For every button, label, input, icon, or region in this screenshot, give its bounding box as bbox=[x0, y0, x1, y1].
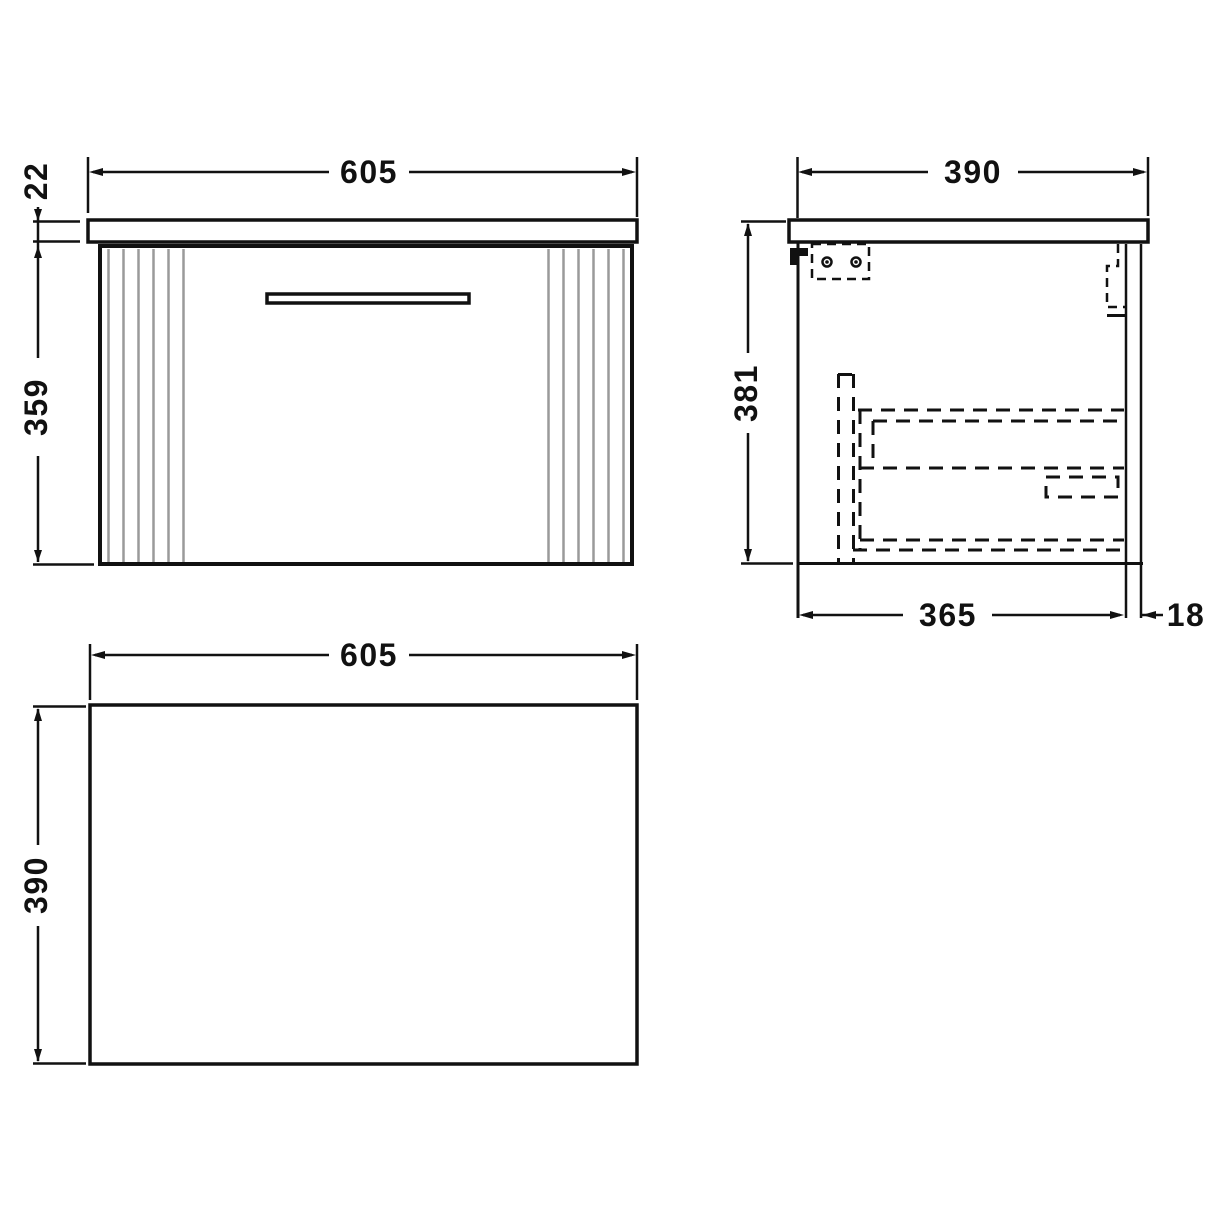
side-mounting-strip bbox=[838, 374, 854, 562]
plan-view: 605 390 bbox=[18, 637, 637, 1064]
side-drawer-hidden-outline bbox=[853, 410, 1124, 550]
drawing-canvas: 605 22 359 bbox=[0, 0, 1224, 1224]
front-counter-label: 22 bbox=[18, 162, 54, 201]
plan-depth-label: 390 bbox=[18, 856, 54, 914]
plan-outline bbox=[90, 705, 637, 1064]
side-front-panel bbox=[1126, 244, 1141, 618]
plan-dim-width: 605 bbox=[90, 637, 637, 700]
side-view: 390 381 365 18 bbox=[728, 154, 1205, 633]
side-height-label: 381 bbox=[728, 364, 764, 422]
front-width-label: 605 bbox=[340, 154, 398, 190]
side-depth-label: 390 bbox=[944, 154, 1002, 190]
side-dim-height: 381 bbox=[728, 222, 793, 564]
side-panel-thickness-label: 18 bbox=[1167, 597, 1206, 633]
front-countertop bbox=[88, 220, 637, 242]
front-dim-width: 605 bbox=[88, 154, 637, 217]
technical-drawing: 605 22 359 bbox=[0, 0, 1224, 1224]
side-body-depth-label: 365 bbox=[919, 597, 977, 633]
side-countertop bbox=[789, 220, 1148, 242]
side-front-fixing-detail bbox=[1107, 244, 1127, 316]
front-height-label: 359 bbox=[18, 378, 54, 436]
front-drawer-handle bbox=[267, 294, 469, 303]
front-view: 605 22 359 bbox=[18, 154, 637, 565]
front-dim-counter-thickness: 22 bbox=[18, 162, 80, 242]
side-dim-panel-thickness: 18 bbox=[1142, 597, 1205, 633]
side-wall-bracket bbox=[790, 244, 869, 279]
side-dim-body-depth: 365 bbox=[799, 597, 1124, 633]
plan-width-label: 605 bbox=[340, 637, 398, 673]
front-dim-body-height: 359 bbox=[18, 207, 94, 565]
plan-dim-depth: 390 bbox=[18, 707, 86, 1064]
side-dim-depth: 390 bbox=[798, 154, 1149, 218]
